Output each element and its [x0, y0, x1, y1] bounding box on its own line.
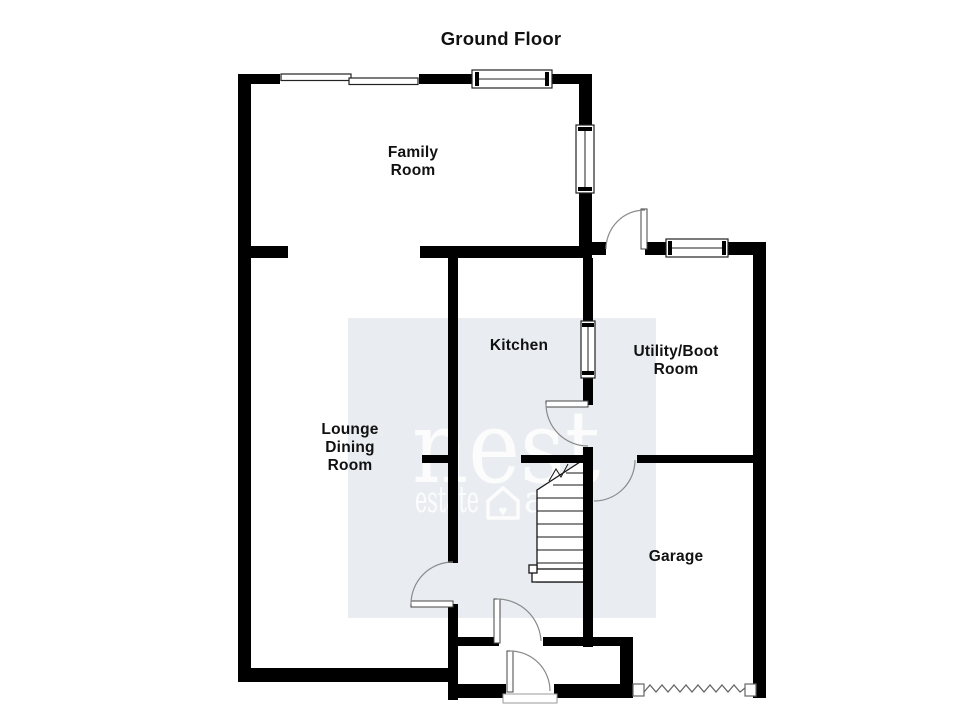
garage-door-zigzag: [633, 684, 756, 696]
wall-family-bottom-left: [251, 246, 288, 258]
page-title: Ground Floor: [441, 28, 562, 50]
heart-glyph: ♥: [499, 503, 508, 520]
wall-hall-top-right: [543, 637, 633, 646]
wall-utility-bottom: [637, 455, 753, 463]
hall-door-icon: [494, 599, 500, 643]
wall-right-outer: [753, 242, 766, 698]
wall-stair-garage: [583, 447, 593, 647]
window-top-left-icon: [281, 74, 351, 81]
watermark-sub-left: estate: [415, 480, 479, 521]
room-label-utility-boot-room: Utility/Boot Room: [633, 343, 718, 379]
room-label-garage: Garage: [649, 548, 704, 566]
wall-left: [238, 74, 251, 682]
window-top-left2-icon: [349, 78, 418, 85]
floorplan-page: nest estate a ♥: [0, 0, 980, 712]
lounge-door-icon: [411, 601, 453, 607]
wall-lounge-divider-upper: [448, 258, 458, 563]
wall-family-bottom-right: [420, 246, 592, 258]
front-door-icon: [507, 651, 513, 692]
floorplan-drawing: nest estate a ♥: [0, 0, 980, 712]
room-label-family-room: Family Room: [388, 144, 438, 180]
room-label-lounge-dining-room: Lounge Dining Room: [321, 421, 378, 475]
wall-kitchen-bottom: [521, 455, 584, 463]
wall-lounge-stub: [422, 455, 448, 463]
back-door-icon: [641, 209, 647, 249]
kitchen-utility-door-icon: [546, 401, 588, 407]
wall-lounge-bottom: [238, 668, 458, 682]
wall-hall-top-left: [458, 637, 499, 646]
room-label-kitchen: Kitchen: [490, 337, 548, 355]
front-door-threshold: [503, 694, 557, 703]
